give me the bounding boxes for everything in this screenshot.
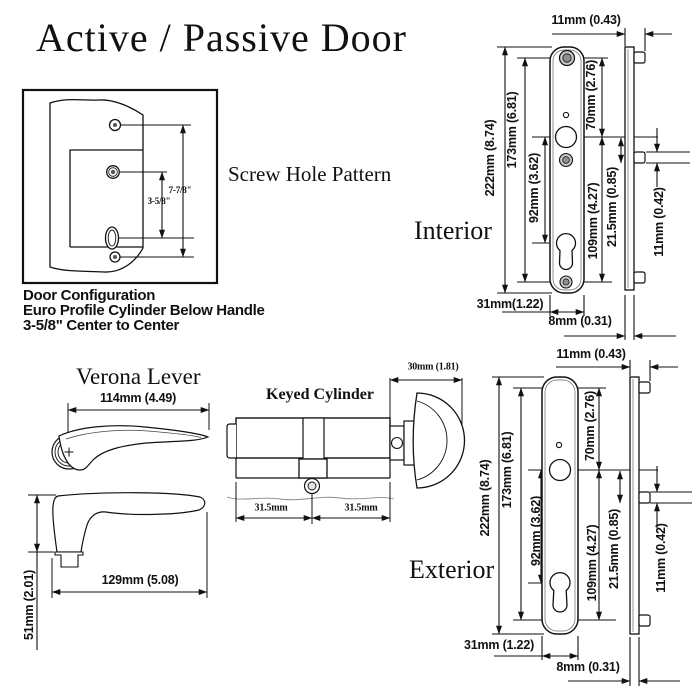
caption-line-2: Euro Profile Cylinder Below Handle: [23, 303, 265, 318]
lever-dim-length-top: 114mm (4.49): [100, 391, 176, 405]
interior-dim-handle-bottom: 109mm (4.27): [586, 183, 600, 260]
lever-dim-length-side: 129mm (5.08): [102, 573, 179, 587]
interior-dim-handle-cyl: 92mm (3.62): [527, 153, 541, 223]
exterior-dim-pin: 11mm (0.42): [654, 523, 668, 592]
cylinder-dim-left: 31.5mm: [255, 503, 288, 514]
interior-dim-overall: 222mm (8.74): [483, 120, 497, 197]
exterior-dim-handle-bottom: 109mm (4.27): [585, 525, 599, 602]
cylinder-dim-right: 31.5mm: [345, 503, 378, 514]
caption-line-1: Door Configuration: [23, 288, 155, 303]
cylinder-label: Keyed Cylinder: [266, 386, 374, 404]
exterior-dim-pin-offset: 21.5mm (0.85): [607, 509, 621, 589]
lever-dim-height: 51mm (2.01): [22, 570, 36, 640]
lever-drawing: [28, 403, 209, 650]
interior-dim-top-handle: 70mm (2.76): [584, 60, 598, 130]
exterior-dim-overall: 222mm (8.74): [478, 460, 492, 537]
caption-line-3: 3-5/8" Center to Center: [23, 318, 179, 333]
screw-pattern-heading: Screw Hole Pattern: [228, 162, 391, 187]
interior-dim-screws: 173mm (6.81): [505, 92, 519, 169]
exterior-dim-screws: 173mm (6.81): [500, 432, 514, 509]
interior-label: Interior: [414, 216, 492, 246]
lever-label: Verona Lever: [76, 364, 201, 390]
screw-pattern-dim-short: 3-5/8": [148, 196, 171, 206]
door-hardware-diagram: Active / Passive Door Screw Hole Pattern…: [0, 0, 700, 700]
exterior-dim-depth: 8mm (0.31): [556, 660, 619, 674]
interior-dim-top-width: 11mm (0.43): [551, 13, 620, 27]
page-title: Active / Passive Door: [36, 14, 407, 61]
interior-dim-pin: 11mm (0.42): [652, 187, 666, 256]
cylinder-dim-thumbturn: 30mm (1.81): [407, 362, 458, 373]
exterior-label: Exterior: [409, 555, 494, 585]
exterior-dim-top-width: 11mm (0.43): [556, 347, 625, 361]
interior-dim-depth: 8mm (0.31): [548, 314, 611, 328]
exterior-dim-width: 31mm (1.22): [464, 638, 534, 652]
exterior-dim-top-handle: 70mm (2.76): [583, 391, 597, 461]
exterior-dim-handle-cyl: 92mm (3.62): [529, 496, 543, 566]
interior-dim-pin-offset: 21.5mm (0.85): [605, 167, 619, 247]
interior-dim-width: 31mm(1.22): [477, 297, 544, 311]
screw-pattern-dim-long: 7-7/8": [169, 185, 192, 195]
